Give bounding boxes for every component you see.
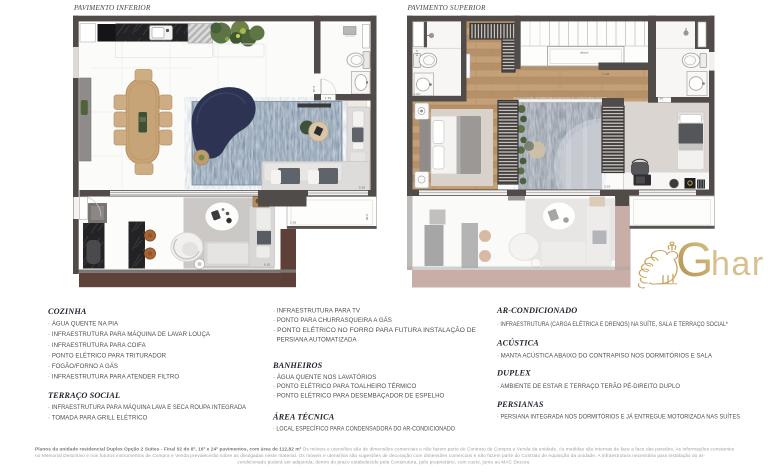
svg-text:BANHEIROS: BANHEIROS [272,361,323,370]
svg-text:· PONTO ELÉTRICO PARA DESEMBAÇ: · PONTO ELÉTRICO PARA DESEMBAÇADOR DE ES… [273,393,445,400]
svg-text:har: har [711,245,765,283]
svg-text:1.54: 1.54 [325,96,331,100]
svg-text:2.74: 2.74 [415,50,419,56]
svg-text:· INFRAESTRUTURA PARA ATENDER: · INFRAESTRUTURA PARA ATENDER FILTRO [48,374,179,381]
svg-text:G: G [676,234,713,287]
svg-text:· PONTO PARA CHURRASQUEIRA A G: · PONTO PARA CHURRASQUEIRA A GÁS [273,317,392,324]
svg-text:1.04: 1.04 [414,92,420,96]
svg-text:2.65: 2.65 [290,221,296,225]
svg-text:AR-CONDICIONADO: AR-CONDICIONADO [496,306,577,315]
svg-text:· ÁGUA QUENTE NOS LAVATÓRIOS: · ÁGUA QUENTE NOS LAVATÓRIOS [273,374,376,381]
svg-text:PERSIANA AUTOMATIZADA: PERSIANA AUTOMATIZADA [277,337,358,344]
svg-text:· INFRAESTRUTURA (CARGA ELÉTRI: · INFRAESTRUTURA (CARGA ELÉTRICA E DRENO… [497,321,729,328]
svg-text:· ÁGUA QUENTE NA PIA: · ÁGUA QUENTE NA PIA [48,321,119,328]
svg-text:· MANTA ACÚSTICA ABAIXO DO CON: · MANTA ACÚSTICA ABAIXO DO CONTRAPISO NO… [497,353,713,360]
svg-text:PAVIMENTO INFERIOR: PAVIMENTO INFERIOR [73,3,151,12]
svg-text:· TOMADA PARA GRILL ELÉTRICO: · TOMADA PARA GRILL ELÉTRICO [48,415,148,422]
svg-text:5.19: 5.19 [73,155,77,161]
svg-text:5.20: 5.20 [359,186,365,190]
svg-text:1.34: 1.34 [657,97,663,101]
svg-text:· PONTO ELÉTRICO PARA TRITURAD: · PONTO ELÉTRICO PARA TRITURADOR [48,352,167,359]
svg-text:0.85: 0.85 [365,214,369,220]
svg-text:2.48: 2.48 [603,72,609,76]
svg-text:3.19: 3.19 [604,185,610,189]
svg-text:desce: desce [580,51,589,55]
svg-text:PAVIMENTO SUPERIOR: PAVIMENTO SUPERIOR [407,3,486,12]
svg-text:TERRAÇO SOCIAL: TERRAÇO SOCIAL [48,391,120,400]
svg-text:ÁREA TÉCNICA: ÁREA TÉCNICA [272,412,335,422]
svg-text:· INFRAESTRUTURA PARA COIFA: · INFRAESTRUTURA PARA COIFA [48,342,147,349]
svg-text:Planos da unidade residencial: Planos da unidade residencial Duplex Opç… [35,447,735,452]
svg-text:· INFRAESTRUTURA PARA MÁQUINA: · INFRAESTRUTURA PARA MÁQUINA DE LAVAR L… [48,331,211,338]
svg-text:ACÚSTICA: ACÚSTICA [496,338,539,348]
svg-text:· AMBIENTE DE ESTAR E TERRAÇO: · AMBIENTE DE ESTAR E TERRAÇO TERÃO PÉ-D… [497,383,680,390]
svg-text:· PERSIANA INTEGRADA NOS DORMI: · PERSIANA INTEGRADA NOS DORMITÓRIOS E J… [497,414,740,421]
svg-text:· PONTO ELÉTRICO PARA TOALHEIR: · PONTO ELÉTRICO PARA TOALHEIRO TÉRMICO [273,383,416,390]
svg-text:2.39: 2.39 [312,86,316,92]
svg-text:COZINHA: COZINHA [48,307,87,316]
svg-text:DUPLEX: DUPLEX [496,369,531,378]
svg-text:condicionado poderá ser adquir: condicionado poderá ser adquirida, dentr… [237,460,530,465]
svg-text:· INFRAESTRUTURA PARA MÁQUINA: · INFRAESTRUTURA PARA MÁQUINA LAVA E SEC… [48,404,247,411]
svg-text:· PONTO ELÉTRICO NO FORRO PARA: · PONTO ELÉTRICO NO FORRO PARA FUTURA IN… [273,327,476,334]
svg-text:· LOCAL ESPECÍFICO PARA CONDEN: · LOCAL ESPECÍFICO PARA CONDENSADORA DO … [273,426,455,433]
svg-text:no Memorial Descritivo e nos f: no Memorial Descritivo e nos futuros ins… [35,453,705,458]
svg-text:6.10: 6.10 [264,263,270,267]
svg-text:· FOGÃO/FORNO A GÁS: · FOGÃO/FORNO A GÁS [48,363,118,370]
svg-text:· INFRAESTRUTURA PARA TV: · INFRAESTRUTURA PARA TV [273,307,361,314]
svg-text:PERSIANAS: PERSIANAS [497,400,544,409]
